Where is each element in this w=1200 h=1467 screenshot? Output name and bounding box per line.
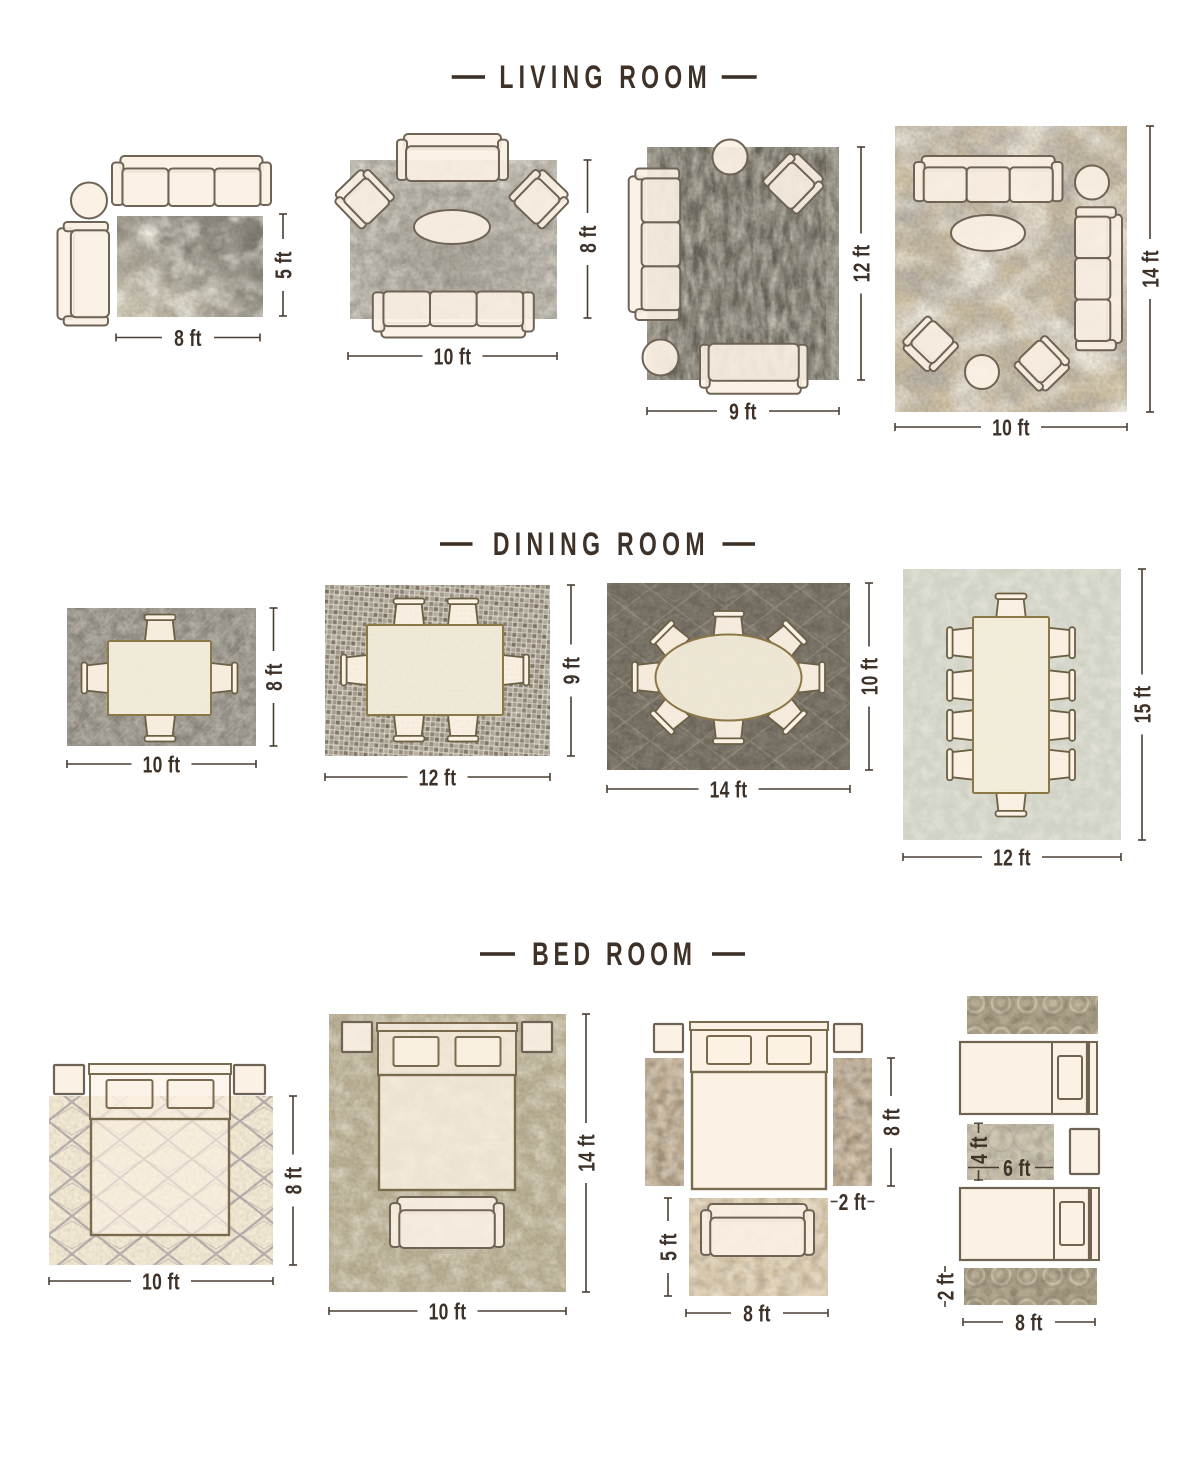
svg-text:5 ft: 5 ft <box>272 251 297 279</box>
svg-text:5 ft: 5 ft <box>657 1233 682 1261</box>
svg-text:BED ROOM: BED ROOM <box>532 936 692 972</box>
svg-text:8 ft: 8 ft <box>174 327 202 352</box>
svg-text:9 ft: 9 ft <box>560 657 585 685</box>
svg-text:10 ft: 10 ft <box>434 345 472 370</box>
svg-text:14 ft: 14 ft <box>710 778 748 803</box>
svg-text:10 ft: 10 ft <box>858 658 883 696</box>
svg-text:12 ft: 12 ft <box>419 766 457 791</box>
svg-text:2 ft: 2 ft <box>839 1191 867 1216</box>
svg-text:6 ft: 6 ft <box>1003 1157 1031 1182</box>
svg-text:8 ft: 8 ft <box>1015 1311 1043 1336</box>
svg-text:8 ft: 8 ft <box>282 1167 307 1195</box>
svg-text:8 ft: 8 ft <box>577 225 602 253</box>
svg-text:2 ft: 2 ft <box>934 1273 959 1301</box>
svg-text:10 ft: 10 ft <box>142 1270 180 1295</box>
svg-text:8 ft: 8 ft <box>263 663 288 691</box>
svg-text:12 ft: 12 ft <box>993 846 1031 871</box>
svg-text:10 ft: 10 ft <box>429 1300 467 1325</box>
svg-text:10 ft: 10 ft <box>992 416 1030 441</box>
svg-text:8 ft: 8 ft <box>880 1108 905 1136</box>
svg-text:14 ft: 14 ft <box>1139 250 1164 288</box>
svg-text:15 ft: 15 ft <box>1131 686 1156 724</box>
svg-text:14 ft: 14 ft <box>575 1134 600 1172</box>
svg-text:8 ft: 8 ft <box>743 1302 771 1327</box>
svg-text:9 ft: 9 ft <box>729 400 757 425</box>
svg-text:10 ft: 10 ft <box>143 753 181 778</box>
svg-text:12 ft: 12 ft <box>850 245 875 283</box>
svg-text:4 ft: 4 ft <box>968 1136 993 1164</box>
